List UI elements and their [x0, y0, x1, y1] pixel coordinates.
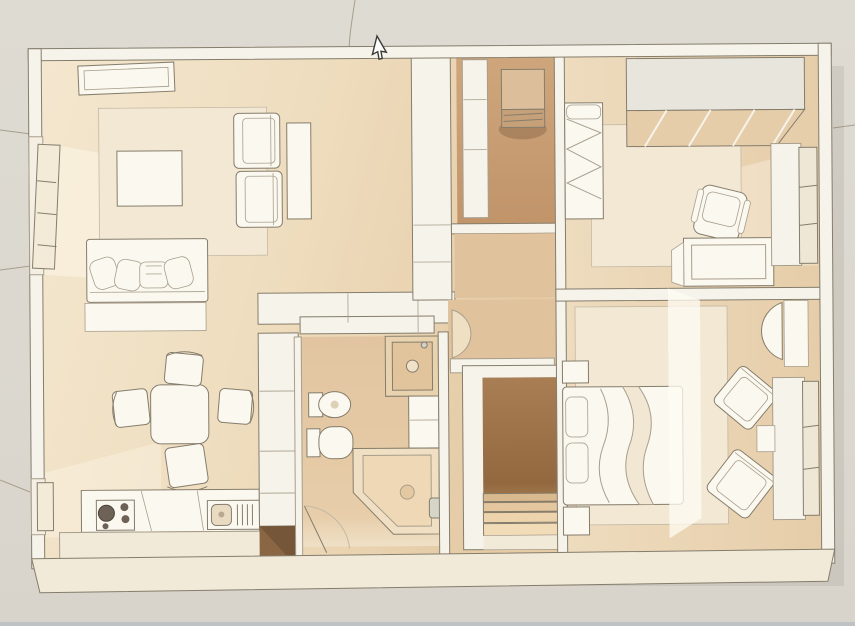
bedroom1-window: [771, 143, 818, 265]
desk-side: [672, 242, 684, 286]
sofa: [86, 239, 207, 303]
wardrobe-front: [627, 109, 805, 146]
ceiling-light-panel: [78, 62, 175, 95]
armchair-cushion: [245, 176, 277, 222]
tub-drain: [400, 485, 414, 499]
entry-floor: [454, 233, 556, 298]
armchair: [236, 171, 282, 227]
chair-seat: [164, 352, 204, 386]
bottom-edge-line: [0, 622, 855, 626]
stair-tread: [483, 502, 559, 512]
kitchen-window: [31, 479, 53, 535]
bedroom-bottom-right: [562, 287, 820, 539]
water-heater: [498, 69, 546, 139]
toilet: [307, 427, 353, 459]
window-sill-shelf: [757, 426, 775, 452]
dining-table: [151, 385, 209, 444]
washing-machine: [409, 396, 439, 448]
curtain-wash: [668, 288, 702, 538]
heater-front: [502, 109, 545, 127]
armchair-cushion: [243, 118, 275, 163]
stove-burner: [102, 523, 108, 529]
stair-tread: [483, 523, 559, 536]
armchair: [234, 113, 280, 168]
dining-chair: [112, 388, 151, 428]
bed-pillow: [566, 443, 588, 483]
kitchen-sink: [207, 500, 259, 529]
dressing-panel: [784, 300, 808, 366]
storage-south-wall: [451, 223, 563, 234]
ceiling-light-inner: [84, 67, 169, 90]
window-frame: [799, 147, 818, 263]
vanity-sink: [385, 336, 438, 396]
stairwell: [462, 365, 563, 550]
closet-band-step: [300, 316, 434, 334]
dining-chair: [164, 352, 204, 387]
window-reveal: [771, 143, 802, 265]
sink-drain: [218, 511, 224, 517]
bidet: [309, 392, 351, 418]
coffee-table: [117, 151, 182, 206]
kitchen-counter: [81, 489, 259, 532]
chair-seat: [164, 443, 208, 488]
heater-top: [501, 69, 544, 109]
stove-burner: [121, 515, 129, 523]
stove-burner: [98, 505, 114, 521]
vestibule: [448, 299, 561, 373]
wall-shelf: [287, 123, 312, 219]
dining-chair: [217, 388, 254, 425]
kitchen-tall-cabinets: [258, 333, 299, 526]
bathroom-east-wall: [438, 332, 450, 560]
stair-tread: [483, 512, 559, 523]
bed-pillow: [567, 105, 601, 119]
storage-room: [450, 55, 564, 298]
toilet-tank: [307, 429, 320, 457]
wardrobe-top: [626, 57, 804, 110]
stove-burner: [120, 503, 128, 511]
double-bed: [563, 386, 684, 505]
desk: [672, 238, 774, 287]
nightstand: [563, 507, 589, 535]
nightstand: [562, 361, 588, 383]
vanity-faucet: [421, 342, 427, 348]
screenshot-root: [0, 0, 855, 626]
stove: [96, 500, 134, 530]
stair-treads: [483, 493, 559, 536]
console-cabinet: [85, 303, 206, 332]
bathroom-west-wall: [294, 337, 303, 561]
cabinet-column: [258, 333, 299, 526]
stair-landing: [484, 535, 560, 550]
toilet-bowl: [319, 427, 353, 459]
bathroom: [294, 332, 450, 561]
entry-wardrobe-column: [411, 54, 452, 300]
single-bed: [565, 103, 604, 219]
vanity-basin: [406, 360, 418, 372]
chair-seat: [217, 388, 253, 425]
bidet-drain: [331, 401, 339, 409]
stair-tread: [483, 493, 559, 502]
floorplan: [28, 43, 835, 593]
window-frame: [803, 381, 820, 515]
wardrobe: [626, 57, 805, 146]
entry-wardrobe: [411, 54, 452, 300]
window-reveal: [772, 377, 805, 519]
storage-shelf: [462, 60, 488, 218]
chair-seat: [112, 388, 151, 428]
floorplan-canvas[interactable]: [0, 0, 855, 626]
bed-pillow: [566, 397, 588, 437]
window-frame: [37, 483, 53, 531]
